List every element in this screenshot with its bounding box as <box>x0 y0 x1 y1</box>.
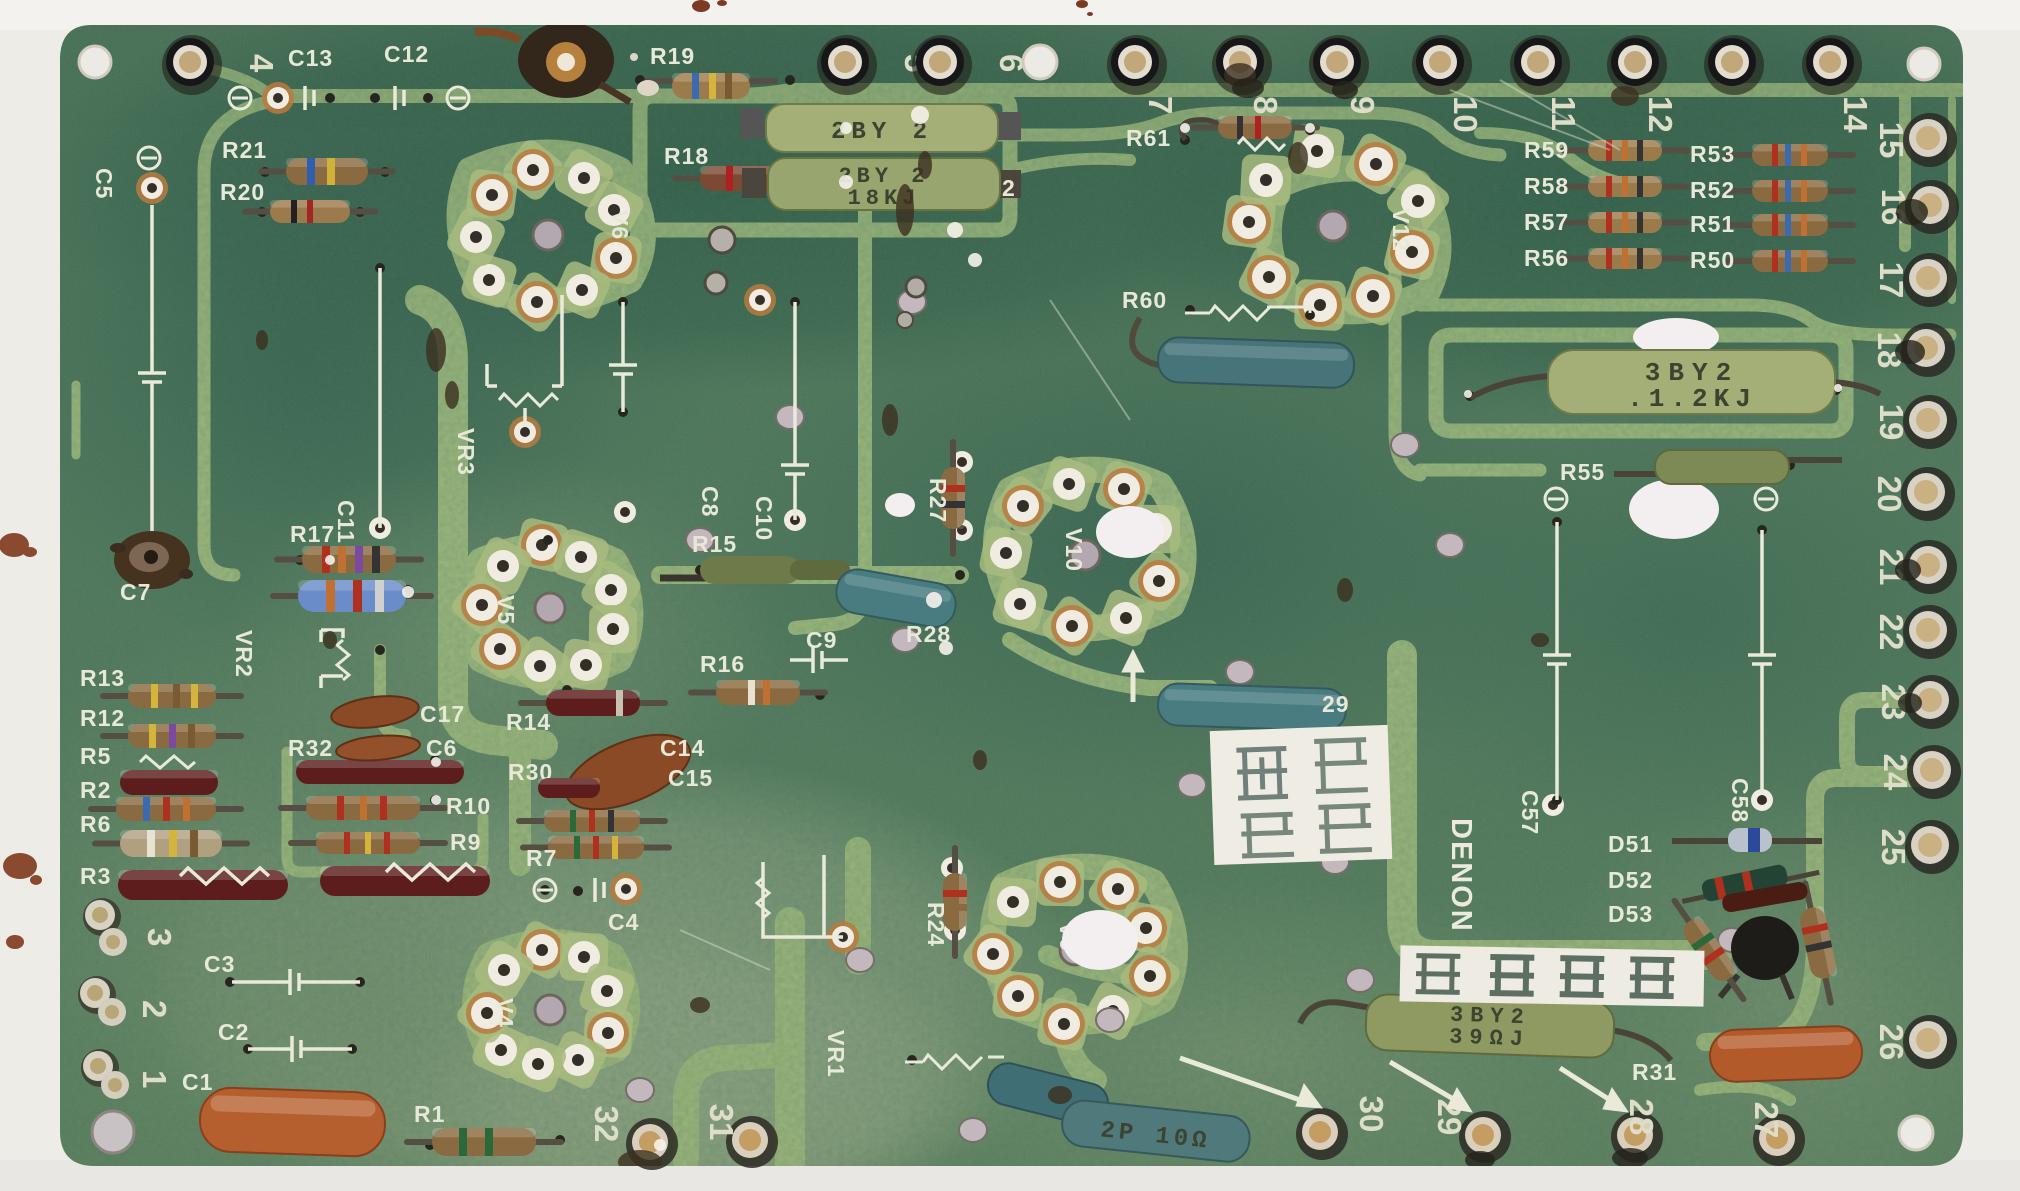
svg-text:V5: V5 <box>493 595 519 625</box>
svg-text:24: 24 <box>1877 754 1914 791</box>
svg-text:D52: D52 <box>1608 867 1653 893</box>
svg-text:R18: R18 <box>664 143 709 169</box>
svg-text:R12: R12 <box>80 705 125 731</box>
svg-text:R17: R17 <box>290 521 335 547</box>
svg-text:8: 8 <box>1247 96 1284 114</box>
svg-text:C5: C5 <box>91 168 117 199</box>
svg-text:DENON: DENON <box>1445 818 1477 933</box>
svg-text:15: 15 <box>1873 122 1910 159</box>
svg-text:C12: C12 <box>384 41 429 67</box>
svg-text:R51: R51 <box>1690 211 1735 237</box>
svg-text:17: 17 <box>1873 262 1910 299</box>
svg-text:31: 31 <box>703 1104 740 1141</box>
svg-text:19: 19 <box>1873 404 1910 441</box>
svg-text:R13: R13 <box>80 665 125 691</box>
svg-text:14: 14 <box>1837 96 1874 133</box>
svg-text:27: 27 <box>1748 1102 1785 1139</box>
svg-text:C11: C11 <box>333 500 359 544</box>
svg-text:C17: C17 <box>420 701 465 727</box>
svg-text:R21: R21 <box>222 137 267 163</box>
svg-text:28: 28 <box>1623 1099 1660 1136</box>
svg-text:C14: C14 <box>660 735 705 761</box>
svg-text:25: 25 <box>1875 829 1912 866</box>
svg-text:R27: R27 <box>925 478 951 523</box>
svg-text:R5: R5 <box>80 743 111 769</box>
svg-text:1: 1 <box>136 1070 173 1088</box>
svg-text:D51: D51 <box>1608 831 1653 857</box>
svg-text:4: 4 <box>243 54 280 73</box>
svg-text:R20: R20 <box>220 179 265 205</box>
svg-text:39ΩJ: 39ΩJ <box>1449 1025 1531 1053</box>
svg-text:VR1: VR1 <box>823 1030 849 1078</box>
svg-text:V10: V10 <box>1061 528 1087 572</box>
svg-text:R14: R14 <box>506 709 551 735</box>
svg-text:C13: C13 <box>288 45 333 71</box>
svg-text:V4: V4 <box>492 998 518 1028</box>
svg-text:12: 12 <box>1642 96 1679 133</box>
svg-text:26: 26 <box>1873 1024 1910 1061</box>
svg-text:2: 2 <box>136 1000 173 1018</box>
svg-text:29: 29 <box>1322 691 1350 717</box>
svg-text:R61: R61 <box>1126 125 1171 151</box>
svg-text:R2: R2 <box>80 777 111 803</box>
svg-text:R60: R60 <box>1122 287 1167 313</box>
svg-text:9: 9 <box>1344 96 1381 114</box>
svg-text:C10: C10 <box>751 496 777 541</box>
svg-text:R57: R57 <box>1524 209 1569 235</box>
svg-text:C6: C6 <box>426 735 457 761</box>
svg-text:R50: R50 <box>1690 247 1735 273</box>
svg-text:C4: C4 <box>608 909 639 935</box>
svg-text:C8: C8 <box>697 486 723 517</box>
svg-text:32: 32 <box>588 1106 625 1143</box>
svg-text:R52: R52 <box>1690 177 1735 203</box>
svg-text:.1.2KJ: .1.2KJ <box>1627 384 1757 414</box>
svg-text:R58: R58 <box>1524 173 1569 199</box>
svg-text:3: 3 <box>141 928 178 946</box>
svg-text:R56: R56 <box>1524 245 1569 271</box>
svg-text:C2: C2 <box>218 1019 249 1045</box>
svg-text:R24: R24 <box>923 902 949 947</box>
svg-text:C1: C1 <box>182 1069 213 1095</box>
svg-text:R53: R53 <box>1690 141 1735 167</box>
svg-text:7: 7 <box>1142 96 1179 114</box>
svg-text:20: 20 <box>1871 476 1908 513</box>
svg-text:R59: R59 <box>1524 137 1569 163</box>
svg-text:R32: R32 <box>288 735 333 761</box>
svg-text:R55: R55 <box>1560 459 1605 485</box>
svg-text:R9: R9 <box>450 829 481 855</box>
svg-text:R7: R7 <box>526 845 557 871</box>
svg-text:R16: R16 <box>700 651 745 677</box>
svg-text:C9: C9 <box>806 627 837 653</box>
svg-text:V6: V6 <box>607 210 633 240</box>
svg-text:R19: R19 <box>650 43 695 69</box>
svg-text:R10: R10 <box>446 793 491 819</box>
svg-text:VR2: VR2 <box>231 630 257 678</box>
svg-text:C57: C57 <box>1517 790 1543 835</box>
svg-text:R1: R1 <box>414 1101 445 1127</box>
svg-text:R31: R31 <box>1632 1059 1677 1085</box>
svg-text:V12: V12 <box>1388 208 1414 252</box>
svg-text:C3: C3 <box>204 951 235 977</box>
svg-text:C7: C7 <box>120 579 151 605</box>
svg-text:30: 30 <box>1353 1096 1390 1133</box>
svg-text:R15: R15 <box>692 531 737 557</box>
svg-text:R3: R3 <box>80 863 111 889</box>
svg-text:22: 22 <box>1873 614 1910 651</box>
svg-text:2: 2 <box>1002 175 1016 201</box>
svg-text:C58: C58 <box>1727 778 1753 823</box>
svg-text:VR3: VR3 <box>453 428 479 476</box>
svg-text:D53: D53 <box>1608 901 1653 927</box>
svg-text:C15: C15 <box>668 765 713 791</box>
svg-text:R6: R6 <box>80 811 111 837</box>
